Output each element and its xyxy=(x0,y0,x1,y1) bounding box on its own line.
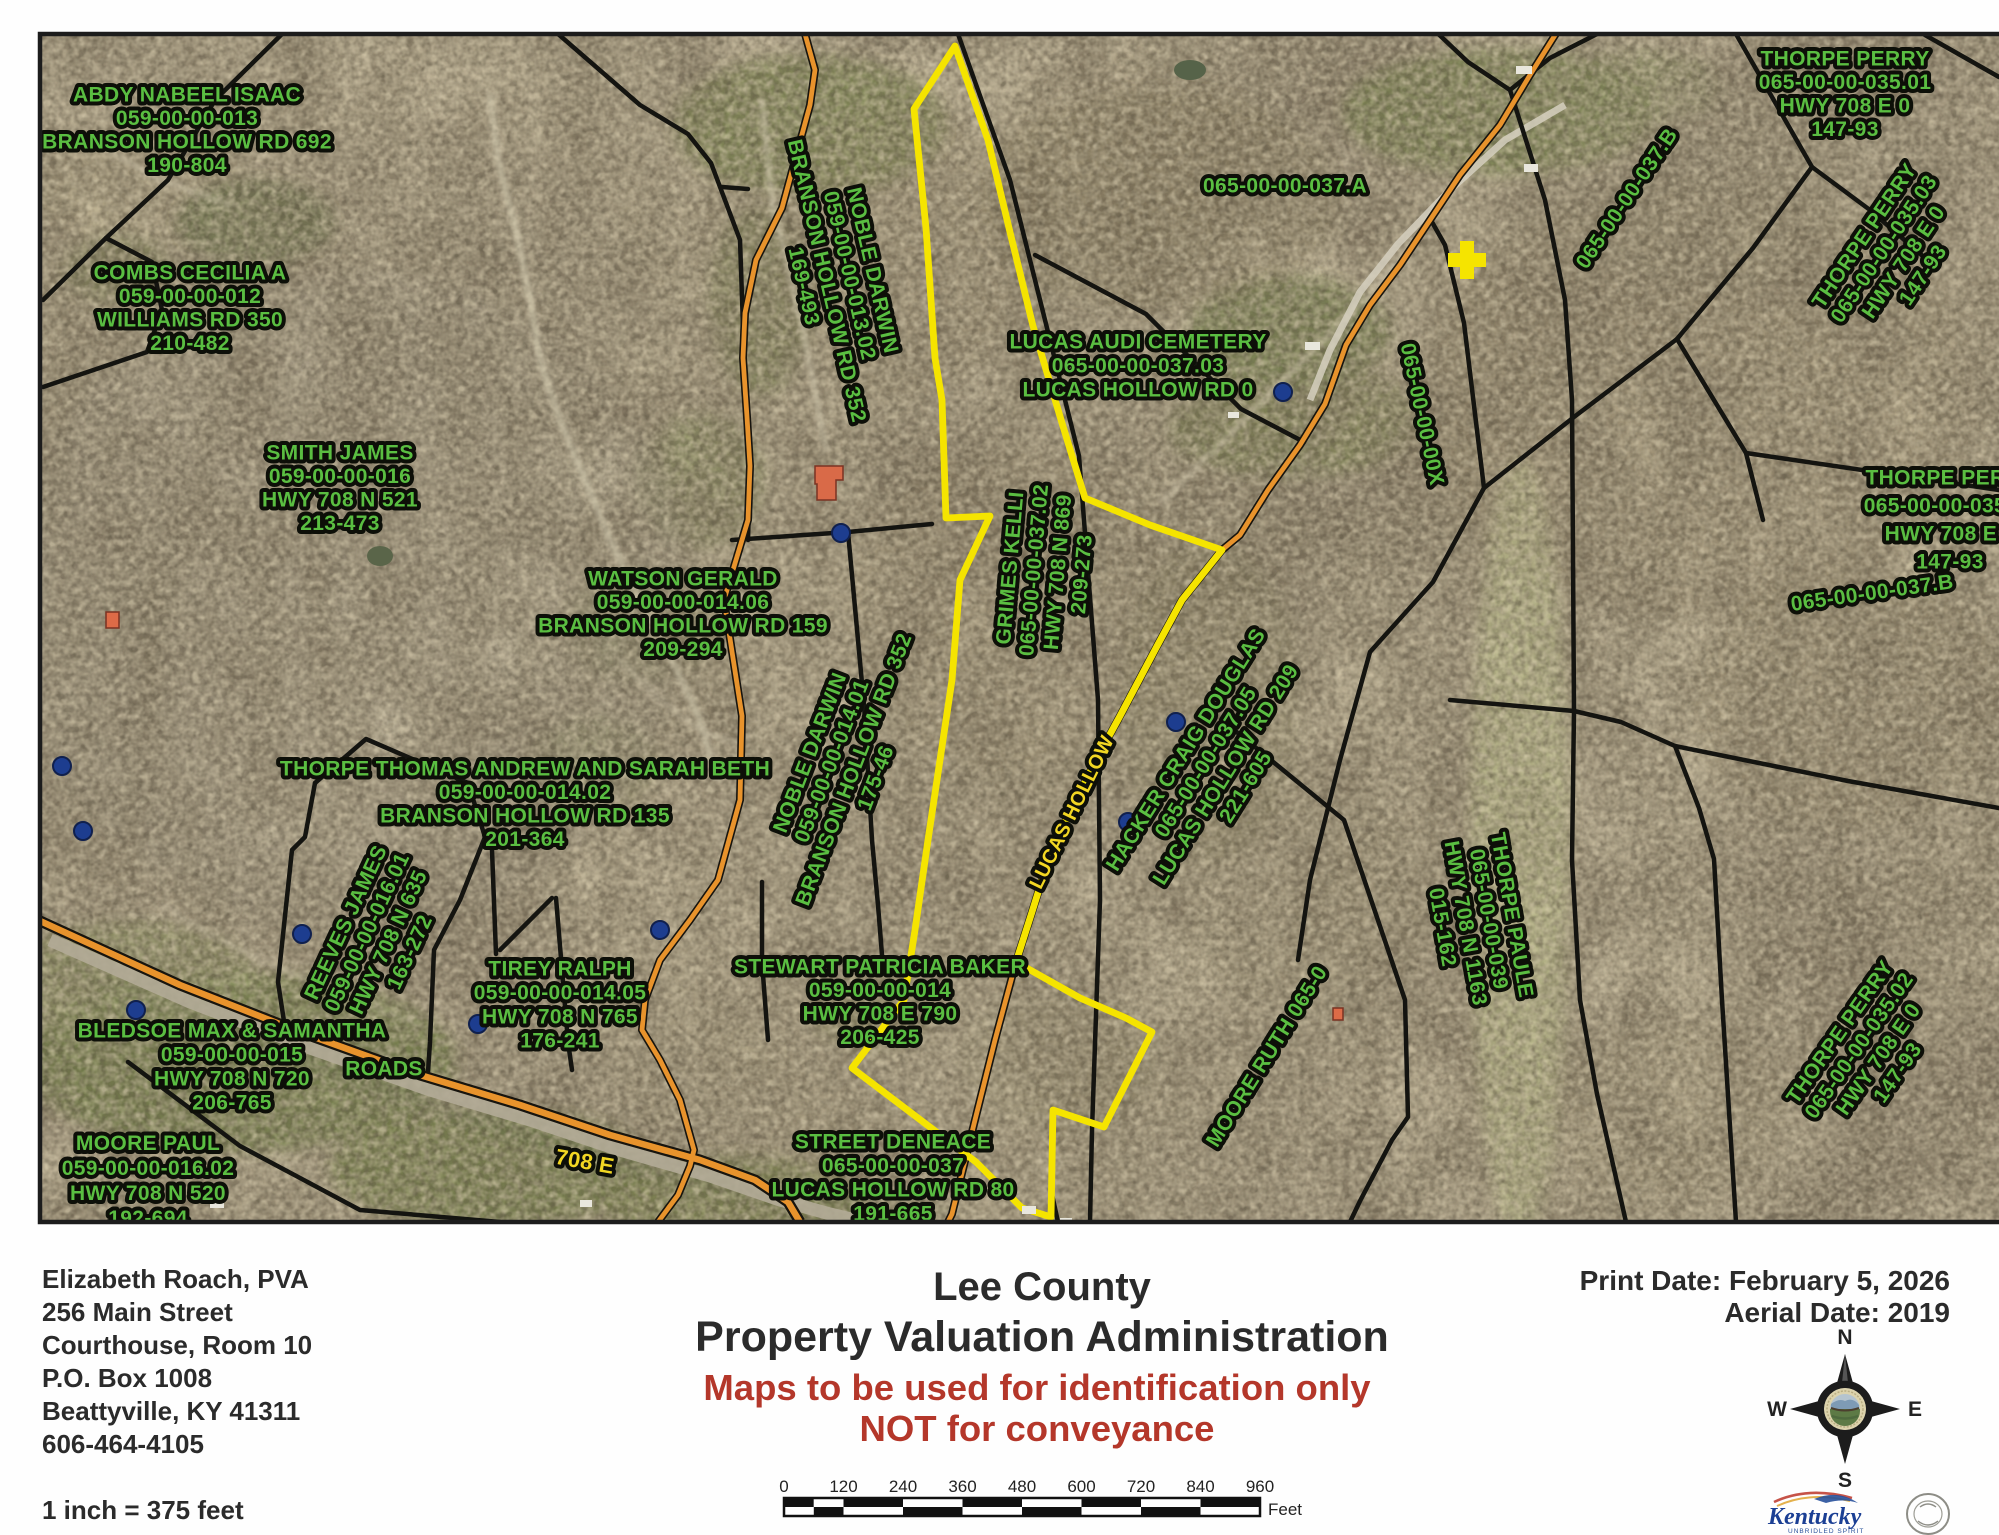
svg-text:201-364: 201-364 xyxy=(485,828,565,851)
svg-text:Feet: Feet xyxy=(1268,1500,1302,1519)
svg-text:240: 240 xyxy=(889,1477,917,1496)
svg-text:480: 480 xyxy=(1008,1477,1036,1496)
svg-text:HWY 708 E 0: HWY 708 E 0 xyxy=(1885,523,1999,546)
svg-text:Kentucky: Kentucky xyxy=(1767,1504,1862,1530)
svg-text:059-00-00-014.05: 059-00-00-014.05 xyxy=(474,982,647,1005)
svg-text:059-00-00-014.02: 059-00-00-014.02 xyxy=(439,781,612,804)
svg-text:206-765: 206-765 xyxy=(192,1092,272,1115)
svg-text:BRANSON HOLLOW RD 159: BRANSON HOLLOW RD 159 xyxy=(538,614,828,637)
svg-text:P.O. Box 1008: P.O. Box 1008 xyxy=(42,1363,212,1393)
svg-text:Elizabeth Roach, PVA: Elizabeth Roach, PVA xyxy=(42,1264,309,1294)
svg-text:720: 720 xyxy=(1127,1477,1155,1496)
svg-text:E: E xyxy=(1908,1398,1922,1421)
svg-text:W: W xyxy=(1767,1398,1787,1421)
svg-text:209-294: 209-294 xyxy=(643,638,723,661)
svg-text:BRANSON HOLLOW RD 692: BRANSON HOLLOW RD 692 xyxy=(42,130,332,153)
svg-text:LUCAS HOLLOW RD 0: LUCAS HOLLOW RD 0 xyxy=(1022,379,1253,402)
svg-text:147-93: 147-93 xyxy=(1811,118,1879,141)
svg-text:S: S xyxy=(1838,1469,1852,1492)
svg-text:176-241: 176-241 xyxy=(520,1030,600,1053)
svg-text:THORPE PERRY: THORPE PERRY xyxy=(1865,467,1999,490)
svg-text:059-00-00-013: 059-00-00-013 xyxy=(116,107,258,130)
svg-text:960: 960 xyxy=(1246,1477,1274,1496)
svg-text:ROADS: ROADS xyxy=(345,1058,423,1081)
svg-text:HWY 708 N 765: HWY 708 N 765 xyxy=(482,1006,638,1029)
svg-text:HWY 708 N 720: HWY 708 N 720 xyxy=(154,1068,310,1091)
svg-text:Lee County: Lee County xyxy=(933,1265,1152,1309)
svg-text:COMBS CECILIA A: COMBS CECILIA A xyxy=(94,261,287,284)
svg-text:059-00-00-015: 059-00-00-015 xyxy=(161,1044,303,1067)
svg-text:065-00-00-035.04: 065-00-00-035.04 xyxy=(1864,495,1999,518)
svg-text:LUCAS AUDI CEMETERY: LUCAS AUDI CEMETERY xyxy=(1009,331,1266,354)
svg-text:059-00-00-012: 059-00-00-012 xyxy=(119,285,261,308)
svg-text:ABDY NABEEL ISAAC: ABDY NABEEL ISAAC xyxy=(73,83,301,106)
svg-text:LUCAS HOLLOW RD 80: LUCAS HOLLOW RD 80 xyxy=(771,1179,1014,1202)
svg-text:065-00-00-035.01: 065-00-00-035.01 xyxy=(1759,71,1932,94)
svg-text:N: N xyxy=(1837,1326,1852,1349)
svg-text:059-00-00-016.02: 059-00-00-016.02 xyxy=(62,1157,235,1180)
svg-text:Courthouse, Room 10: Courthouse, Room 10 xyxy=(42,1330,312,1360)
svg-text:360: 360 xyxy=(948,1477,976,1496)
svg-text:190-804: 190-804 xyxy=(147,154,227,177)
svg-text:MOORE PAUL: MOORE PAUL xyxy=(76,1132,220,1155)
svg-text:206-425: 206-425 xyxy=(840,1026,920,1049)
svg-text:059-00-00-014: 059-00-00-014 xyxy=(809,979,951,1002)
svg-text:Aerial Date: 2019: Aerial Date: 2019 xyxy=(1724,1297,1950,1328)
svg-text:840: 840 xyxy=(1186,1477,1214,1496)
svg-text:Maps to be used for identifica: Maps to be used for identification only xyxy=(703,1367,1371,1408)
svg-text:256 Main Street: 256 Main Street xyxy=(42,1297,233,1327)
svg-text:Print Date: February 5, 2026: Print Date: February 5, 2026 xyxy=(1580,1265,1950,1296)
svg-text:SMITH JAMES: SMITH JAMES xyxy=(266,441,413,464)
svg-text:213-473: 213-473 xyxy=(300,512,380,535)
svg-text:HWY 708 E 0: HWY 708 E 0 xyxy=(1780,94,1911,117)
svg-text:Beattyville, KY 41311: Beattyville, KY 41311 xyxy=(42,1396,300,1426)
svg-text:0: 0 xyxy=(779,1477,788,1496)
svg-text:120: 120 xyxy=(829,1477,857,1496)
svg-text:THORPE PERRY: THORPE PERRY xyxy=(1760,47,1929,70)
svg-text:HWY 708 E 790: HWY 708 E 790 xyxy=(803,1002,958,1025)
svg-text:BLEDSOE MAX & SAMANTHA: BLEDSOE MAX & SAMANTHA xyxy=(78,1020,387,1043)
svg-text:TIREY RALPH: TIREY RALPH xyxy=(488,958,631,981)
svg-text:UNBRIDLED SPIRIT: UNBRIDLED SPIRIT xyxy=(1788,1528,1864,1535)
svg-text:STREET DENEACE: STREET DENEACE xyxy=(795,1131,991,1154)
svg-text:NOT for conveyance: NOT for conveyance xyxy=(860,1408,1215,1449)
svg-text:059-00-00-014.06: 059-00-00-014.06 xyxy=(597,591,770,614)
svg-text:WILLIAMS RD 350: WILLIAMS RD 350 xyxy=(97,308,283,331)
svg-text:059-00-00-016: 059-00-00-016 xyxy=(269,465,411,488)
svg-text:BRANSON HOLLOW RD 135: BRANSON HOLLOW RD 135 xyxy=(380,804,670,827)
svg-text:065-00-00-037.03: 065-00-00-037.03 xyxy=(1052,355,1225,378)
svg-text:HWY 708 N 520: HWY 708 N 520 xyxy=(70,1182,226,1205)
svg-text:606-464-4105: 606-464-4105 xyxy=(42,1429,204,1459)
svg-text:Property Valuation Administrat: Property Valuation Administration xyxy=(695,1313,1389,1361)
svg-text:210-482: 210-482 xyxy=(150,332,230,355)
svg-text:065-00-00-037: 065-00-00-037 xyxy=(822,1155,964,1178)
svg-text:HWY 708 N 521: HWY 708 N 521 xyxy=(262,488,418,511)
svg-text:065-00-00-037.A: 065-00-00-037.A xyxy=(1203,175,1367,198)
svg-text:WATSON GERALD: WATSON GERALD xyxy=(588,567,778,590)
svg-text:600: 600 xyxy=(1067,1477,1095,1496)
svg-text:1 inch = 375 feet: 1 inch = 375 feet xyxy=(42,1495,244,1525)
svg-text:STEWART PATRICIA BAKER: STEWART PATRICIA BAKER xyxy=(734,955,1026,978)
svg-text:THORPE THOMAS ANDREW AND SARAH: THORPE THOMAS ANDREW AND SARAH BETH xyxy=(280,757,770,780)
